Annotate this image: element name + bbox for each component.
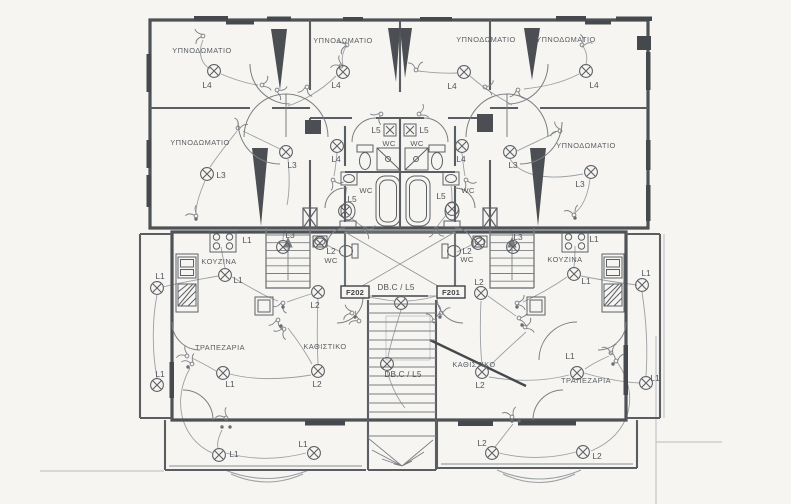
lamp-symbol xyxy=(568,268,581,281)
lamp-symbol xyxy=(585,166,598,179)
circuit-label: L1 xyxy=(589,234,599,244)
circuit-label: L4 xyxy=(447,81,457,91)
switch-symbol xyxy=(273,300,290,317)
room-label: ΤΡΑΠΕΖΑΡΙΑ xyxy=(195,343,245,352)
lamp-symbol xyxy=(312,286,325,299)
room-label: ΚΑΘΙΣΤΙΚΟ xyxy=(303,342,346,351)
lamp-symbol xyxy=(312,365,325,378)
wc-label: WC xyxy=(324,256,337,265)
switch-layer xyxy=(174,29,625,422)
circuit-label: L5 xyxy=(436,191,446,201)
circuit-label: L4 xyxy=(331,154,341,164)
chimney-box xyxy=(637,36,651,50)
circuit-label: L3 xyxy=(508,160,518,170)
lamp-symbol xyxy=(577,446,590,459)
lamp-symbol xyxy=(280,146,293,159)
circuit-label: L3 xyxy=(287,160,297,170)
lamp-symbol xyxy=(151,379,164,392)
showers xyxy=(377,148,428,170)
lamp-symbol xyxy=(446,203,459,216)
junction-dot xyxy=(220,425,223,428)
junction-dot xyxy=(573,216,576,219)
circuit-label: L3 xyxy=(513,232,523,242)
circuit-label: L4 xyxy=(456,154,466,164)
db-circuit-label: DB.C / L5 xyxy=(377,283,415,292)
room-label: ΤΡΑΠΕΖΑΡΙΑ xyxy=(561,376,611,385)
room-label: ΚΑΘΙΣΤΙΚΟ xyxy=(452,360,495,369)
room-label: ΥΠΝΟΔΩΜΑΤΙΟ xyxy=(556,141,615,150)
switch-symbol xyxy=(274,83,291,100)
circuit-label: L5 xyxy=(347,194,357,204)
circuit-label: L2 xyxy=(462,246,472,256)
circuit-label: L3 xyxy=(216,170,226,180)
lamp-symbol xyxy=(217,367,230,380)
junction-dot xyxy=(353,315,356,318)
circuit-label: L3 xyxy=(285,230,295,240)
bathtubs xyxy=(376,176,430,226)
wc-label: WC xyxy=(410,139,423,148)
circuit-label: L4 xyxy=(331,80,341,90)
circuit-label: L2 xyxy=(474,277,484,287)
room-label: ΥΠΝΟΔΩΜΑΤΙΟ xyxy=(536,35,595,44)
wc-label: WC xyxy=(382,139,395,148)
lamp-symbol xyxy=(331,140,344,153)
switch-symbol xyxy=(417,103,431,117)
junction-dot xyxy=(279,324,282,327)
junction-dot xyxy=(228,425,231,428)
circuit-label: L2 xyxy=(477,438,487,448)
lamp-symbol xyxy=(337,66,350,79)
switch-symbol xyxy=(406,56,423,73)
panel-tag-label: F201 xyxy=(442,288,461,297)
lamp-symbol xyxy=(201,168,214,181)
circuit-label: L2 xyxy=(326,246,336,256)
circuit-label: L1 xyxy=(155,369,165,379)
junction-dot-layer xyxy=(186,216,614,428)
room-label: ΥΠΝΟΔΩΜΑΤΙΟ xyxy=(170,138,229,147)
circuit-label: L2 xyxy=(592,451,602,461)
lamp-symbol xyxy=(580,65,593,78)
circuit-label: L1 xyxy=(242,235,252,245)
junction-dot xyxy=(517,419,520,422)
lamp-symbol xyxy=(219,269,232,282)
junction-dot xyxy=(438,315,441,318)
room-label: ΚΟΥΖΙΝΑ xyxy=(547,255,582,264)
lamp-symbol xyxy=(504,146,517,159)
switch-symbol xyxy=(345,311,362,328)
switch-symbol xyxy=(189,29,206,46)
switch-symbol xyxy=(607,346,625,364)
room-label: ΚΟΥΖΙΝΑ xyxy=(201,257,236,266)
junction-dot xyxy=(611,362,614,365)
wall-lamp-symbol xyxy=(404,124,416,136)
scanned-floorplan-page: ΥΠΝΟΔΩΜΑΤΙΟΥΠΝΟΔΩΜΑΤΙΟΥΠΝΟΔΩΜΑΤΙΟΥΠΝΟΔΩΜ… xyxy=(0,0,791,504)
lamp-symbol xyxy=(213,449,226,462)
circuit-label: L2 xyxy=(310,300,320,310)
lamp-symbol xyxy=(208,65,221,78)
switch-symbol xyxy=(516,309,534,327)
db-circuit-label: DB.C / L5 xyxy=(384,370,422,379)
lamp-symbol xyxy=(151,282,164,295)
junction-dot xyxy=(186,365,189,368)
lamp-symbol xyxy=(308,447,321,460)
interior-walls xyxy=(140,20,660,470)
circuit-label: L1 xyxy=(155,271,165,281)
switch-symbol xyxy=(328,55,344,71)
wc-label: WC xyxy=(359,186,372,195)
circuit-label: L1 xyxy=(581,276,591,286)
wall-lamp-symbol xyxy=(384,124,396,136)
circuit-label: L1 xyxy=(225,379,235,389)
lamp-symbol xyxy=(395,297,408,310)
room-label: ΥΠΝΟΔΩΜΑΤΙΟ xyxy=(313,36,372,45)
switch-symbol xyxy=(337,305,355,323)
junction-dot xyxy=(194,217,197,220)
lamp-symbol xyxy=(381,358,394,371)
ground-arcs xyxy=(225,470,581,483)
circuit-label: L1 xyxy=(565,351,575,361)
circuit-label: L4 xyxy=(589,80,599,90)
circuit-label: L5 xyxy=(419,125,429,135)
switch-symbol xyxy=(600,340,616,356)
circuit-label: L1 xyxy=(229,449,239,459)
circuit-label: L4 xyxy=(202,80,212,90)
circuit-label: L1 xyxy=(298,439,308,449)
wc-label: WC xyxy=(460,255,473,264)
junction-dot xyxy=(520,323,523,326)
circuit-label: L2 xyxy=(312,379,322,389)
switch-symbol xyxy=(174,345,190,361)
junction-dot xyxy=(515,305,518,308)
switch-symbol xyxy=(231,114,248,131)
lamp-symbol xyxy=(486,447,499,460)
circuit-label: L1 xyxy=(641,268,651,278)
switch-symbol xyxy=(563,203,577,217)
lamp-symbol xyxy=(475,287,488,300)
junction-dot xyxy=(281,305,284,308)
wc-label: WC xyxy=(461,186,474,195)
room-label: ΥΠΝΟΔΩΜΑΤΙΟ xyxy=(456,35,515,44)
circuit-label: L1 xyxy=(650,373,660,383)
circuit-label: L3 xyxy=(575,179,585,189)
circuit-label: L2 xyxy=(475,380,485,390)
junction-dot xyxy=(510,419,513,422)
switch-symbol xyxy=(501,405,515,419)
circuit-label: L5 xyxy=(371,125,381,135)
wiring-layer xyxy=(153,40,647,458)
floorplan-canvas: ΥΠΝΟΔΩΜΑΤΙΟΥΠΝΟΔΩΜΑΤΙΟΥΠΝΟΔΩΜΑΤΙΟΥΠΝΟΔΩΜ… xyxy=(0,0,791,504)
switch-symbol xyxy=(273,326,289,342)
room-label: ΥΠΝΟΔΩΜΑΤΙΟ xyxy=(172,46,231,55)
lamp-symbol xyxy=(636,279,649,292)
switch-symbol xyxy=(424,307,441,324)
panel-tag-label: F202 xyxy=(346,288,364,297)
circuit-label: L1 xyxy=(233,275,243,285)
lamp-symbol xyxy=(458,66,471,79)
lamp-symbol xyxy=(456,140,469,153)
switch-symbol xyxy=(260,74,276,90)
